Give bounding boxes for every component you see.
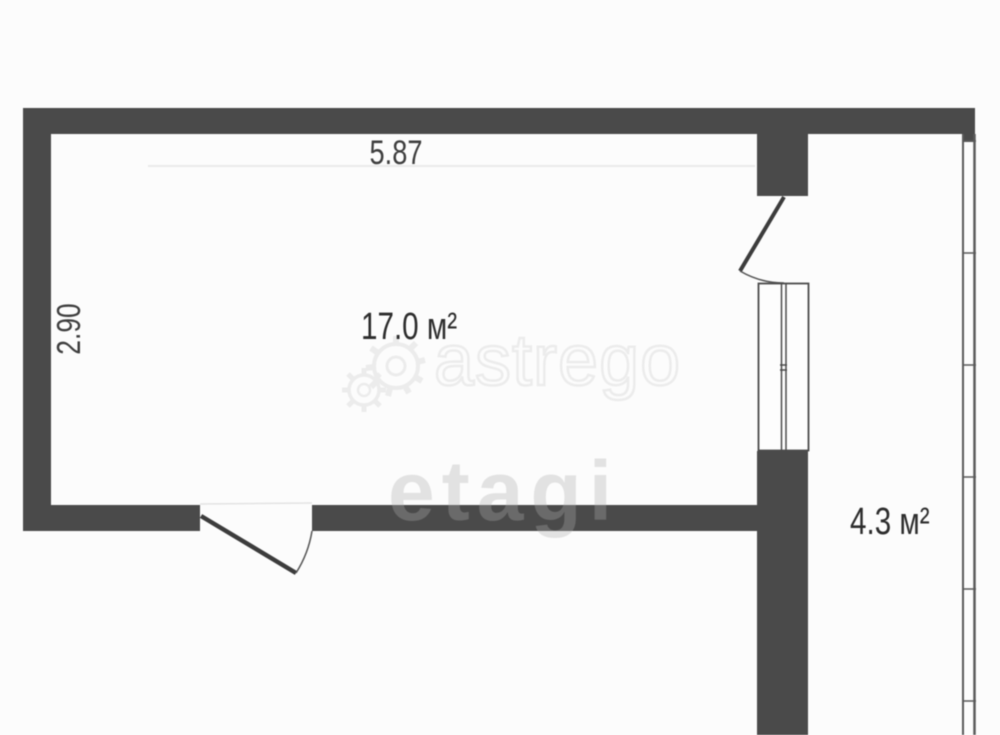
svg-text:5.87: 5.87 [370,133,423,172]
svg-text:2.90: 2.90 [51,303,87,354]
svg-text:etagi: etagi [388,444,619,538]
svg-text:17.0 м²: 17.0 м² [361,306,457,348]
svg-text:astrego: astrego [434,321,681,401]
svg-text:4.3 м²: 4.3 м² [850,501,930,543]
